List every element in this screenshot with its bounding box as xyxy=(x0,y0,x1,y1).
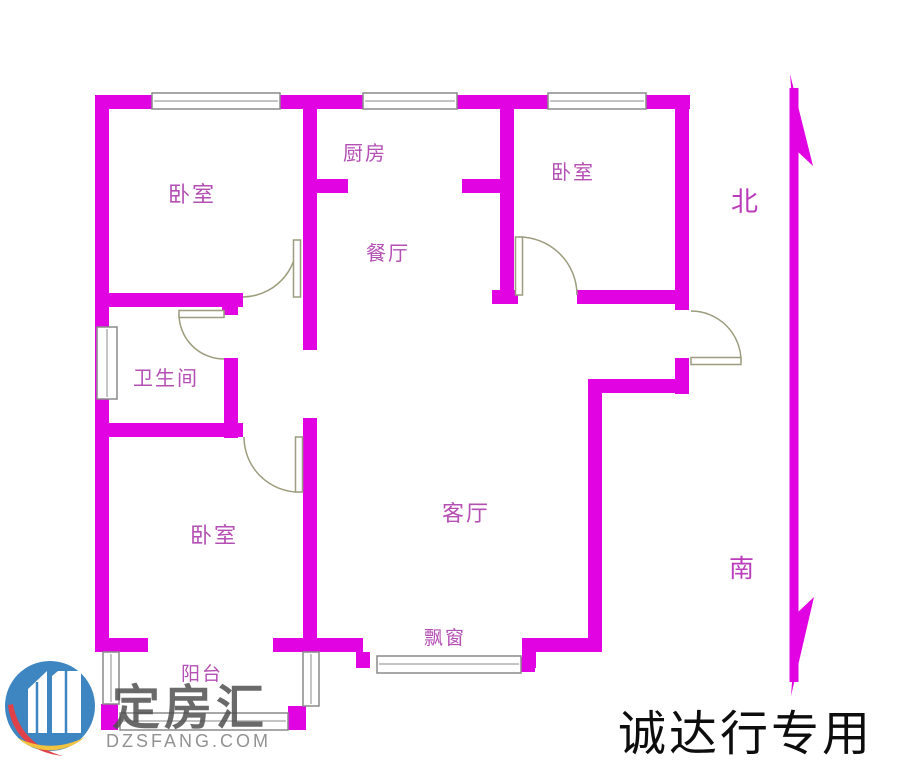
wall xyxy=(492,290,518,304)
door-arc-bedroom-bottom-left xyxy=(244,437,299,492)
room-label-kitchen: 厨房 xyxy=(343,144,387,164)
agency-exclusive-text: 诚达行专用 xyxy=(618,694,873,764)
room-label-living: 客厅 xyxy=(442,503,490,525)
wall xyxy=(588,379,602,651)
wall xyxy=(273,638,363,652)
door-arcs xyxy=(179,237,741,492)
wall xyxy=(303,418,317,651)
room-label-bedroom-top-left: 卧室 xyxy=(168,184,216,206)
watermark-domain-text: DZSFANG.COM xyxy=(106,731,271,752)
wall xyxy=(95,423,243,437)
wall xyxy=(500,95,514,303)
floor-plan-canvas: 卧室 厨房 卧室 餐厅 卫生间 卧室 客厅 飘窗 阳台 北 南 定房汇 DZSF… xyxy=(0,0,900,769)
wall xyxy=(95,638,148,652)
wall xyxy=(588,379,689,393)
door-leaf xyxy=(179,311,224,318)
door-leaves xyxy=(179,237,741,492)
compass-north-label: 北 xyxy=(731,189,760,216)
room-label-bathroom: 卫生间 xyxy=(133,369,199,389)
wall xyxy=(521,657,535,672)
room-label-bay-window: 飘窗 xyxy=(424,629,466,648)
door-arc-bedroom-top-left xyxy=(243,242,297,297)
wall xyxy=(356,652,370,668)
door-arc-bathroom xyxy=(179,314,224,359)
door-arc-bedroom-top-right xyxy=(519,237,577,295)
dzsfang-logo-icon xyxy=(0,655,110,769)
room-label-bedroom-bottom-left: 卧室 xyxy=(190,525,238,547)
door-leaf xyxy=(294,240,301,297)
wall xyxy=(303,179,348,193)
wall xyxy=(577,290,675,304)
room-label-dining: 餐厅 xyxy=(366,244,410,264)
wall xyxy=(95,293,243,307)
door-leaf xyxy=(691,358,741,365)
wall xyxy=(675,95,689,310)
door-leaf xyxy=(516,237,523,295)
watermark-brand-text: 定房汇 xyxy=(112,668,268,738)
room-label-bedroom-top-right: 卧室 xyxy=(551,163,595,183)
wall xyxy=(462,179,514,193)
wall xyxy=(303,95,317,350)
door-arc-entry xyxy=(691,311,741,361)
wall xyxy=(288,706,306,730)
compass-arrow xyxy=(790,74,814,696)
compass-south-label: 南 xyxy=(729,557,756,582)
door-leaf xyxy=(296,437,303,492)
